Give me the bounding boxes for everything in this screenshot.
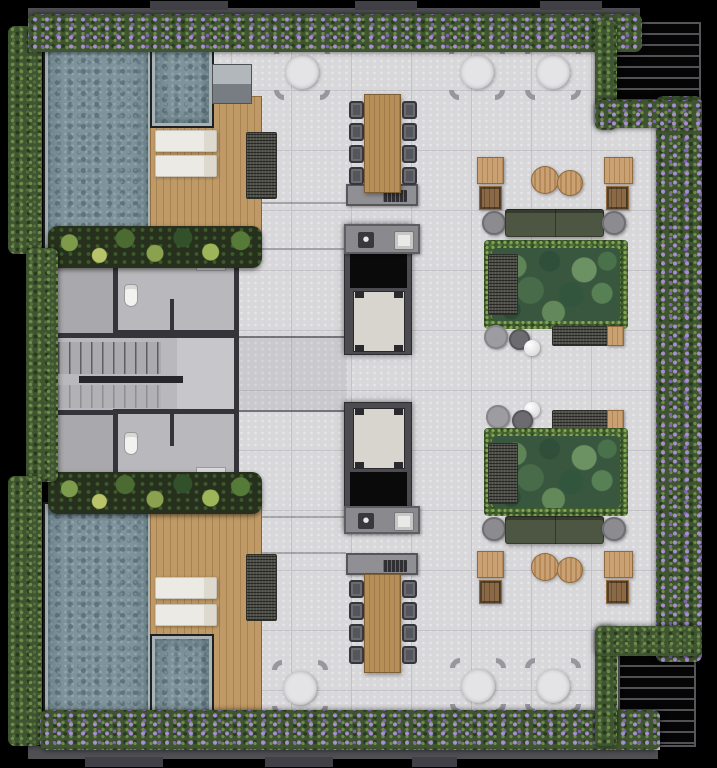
cafe-chair	[606, 580, 629, 604]
cafe-table	[604, 551, 633, 578]
corridor	[239, 336, 347, 412]
table-top	[536, 669, 570, 703]
stair-flight-upper	[47, 342, 161, 374]
restroom-partition-wall	[170, 414, 174, 446]
dining-chair	[349, 624, 364, 642]
round-dining-table	[530, 49, 576, 95]
table-top	[283, 671, 317, 705]
rattan-bench	[552, 326, 608, 346]
burner-icon	[358, 513, 374, 529]
wall-tab	[540, 1, 602, 10]
dining-table-upper	[364, 94, 401, 193]
floor-plan	[0, 0, 717, 768]
elevator-cab	[353, 291, 405, 352]
dining-chair	[402, 145, 417, 163]
grill-station-cabinet	[212, 64, 252, 104]
wall-tab	[355, 1, 417, 10]
round-dining-table	[279, 49, 325, 95]
dining-chair	[349, 101, 364, 119]
table-top	[285, 55, 319, 89]
wall-tab	[150, 1, 228, 10]
dining-chair	[349, 167, 364, 185]
gray-pouf	[484, 325, 508, 349]
elevator-shaft	[350, 472, 407, 506]
rattan-lounge-chair	[488, 443, 518, 504]
kitchen-island-upper	[344, 224, 420, 254]
white-sphere-decor	[524, 340, 540, 356]
sink-icon	[394, 231, 414, 250]
cafe-table	[477, 551, 504, 578]
toilet-fixture	[124, 432, 138, 455]
sun-lounger	[155, 130, 217, 152]
dining-chair	[402, 123, 417, 141]
dining-table-lower	[364, 574, 401, 673]
restroom-upper	[113, 258, 239, 335]
hedge-corner-top-right-horizontal	[595, 100, 702, 128]
cafe-table	[477, 157, 504, 184]
hedge-corner-bottom-right-horizontal	[595, 626, 701, 656]
wood-pouf	[557, 557, 583, 583]
stair-hall	[36, 333, 239, 415]
wall-tab	[85, 757, 163, 767]
dining-chair	[349, 602, 364, 620]
wood-pouf	[531, 166, 559, 194]
bench-wood-end	[607, 326, 624, 346]
stair-flight-lower	[47, 385, 161, 408]
round-dining-table	[455, 663, 501, 709]
table-top	[536, 55, 570, 89]
gray-pouf	[486, 405, 510, 429]
paving-joint	[262, 516, 346, 518]
rattan-bench	[552, 410, 608, 430]
bench-wood-end	[607, 410, 624, 430]
restroom-lower	[113, 409, 239, 480]
table-top	[461, 669, 495, 703]
tropical-planter-lower	[48, 472, 262, 514]
hedge-left-upper	[8, 26, 42, 254]
sofa-side-table	[602, 517, 626, 541]
elevator-shaft	[350, 254, 407, 288]
hedge-left-lower	[8, 476, 42, 746]
round-dining-table	[277, 665, 323, 711]
sofa-side-table	[482, 211, 506, 235]
rattan-daybed-upper	[246, 132, 277, 199]
sun-lounger	[155, 155, 217, 177]
flowering-hedge-bottom	[40, 710, 660, 750]
dining-chair	[402, 580, 417, 598]
restroom-partition-wall	[170, 299, 174, 330]
dining-chair	[402, 646, 417, 664]
rattan-lounge-chair	[488, 254, 518, 315]
sun-lounger	[155, 604, 217, 626]
flowering-hedge-top	[28, 14, 642, 52]
sink-icon	[394, 512, 414, 531]
flowering-hedge-right	[656, 96, 702, 662]
cafe-table	[604, 157, 633, 184]
toilet-fixture	[124, 284, 138, 307]
round-dining-table	[454, 49, 500, 95]
table-top	[460, 55, 494, 89]
dining-chair	[402, 101, 417, 119]
burner-icon	[358, 232, 374, 248]
wood-pouf	[531, 553, 559, 581]
tropical-planter-upper	[48, 226, 262, 268]
dining-chair	[349, 145, 364, 163]
paving-joint	[262, 202, 346, 204]
concrete-path-upper	[55, 262, 117, 340]
dining-chair	[349, 580, 364, 598]
grill-icon	[383, 560, 407, 572]
cafe-chair	[479, 186, 502, 210]
paving-joint	[262, 248, 346, 250]
cafe-chair	[479, 580, 502, 604]
sofa-upper	[505, 209, 604, 237]
wall-tab	[265, 757, 333, 767]
wood-pouf	[557, 170, 583, 196]
cafe-chair	[606, 186, 629, 210]
dining-chair	[402, 167, 417, 185]
dining-chair	[349, 123, 364, 141]
sofa-side-table	[482, 517, 506, 541]
round-dining-table	[530, 663, 576, 709]
sofa-side-table	[602, 211, 626, 235]
sun-lounger	[155, 577, 217, 599]
bbq-counter-lower	[346, 553, 418, 575]
stair-vestibule	[177, 338, 234, 410]
main-pool-lower	[45, 504, 151, 732]
main-pool-upper	[45, 26, 151, 250]
wall-tab	[412, 757, 457, 767]
sofa-lower	[505, 516, 604, 544]
dining-chair	[402, 602, 417, 620]
kitchen-island-lower	[344, 506, 420, 534]
hedge-left-middle	[26, 248, 58, 482]
stair-rail	[79, 376, 183, 383]
rattan-daybed-lower	[246, 554, 277, 621]
dining-chair	[402, 624, 417, 642]
elevator-cab	[353, 408, 405, 469]
dining-chair	[349, 646, 364, 664]
